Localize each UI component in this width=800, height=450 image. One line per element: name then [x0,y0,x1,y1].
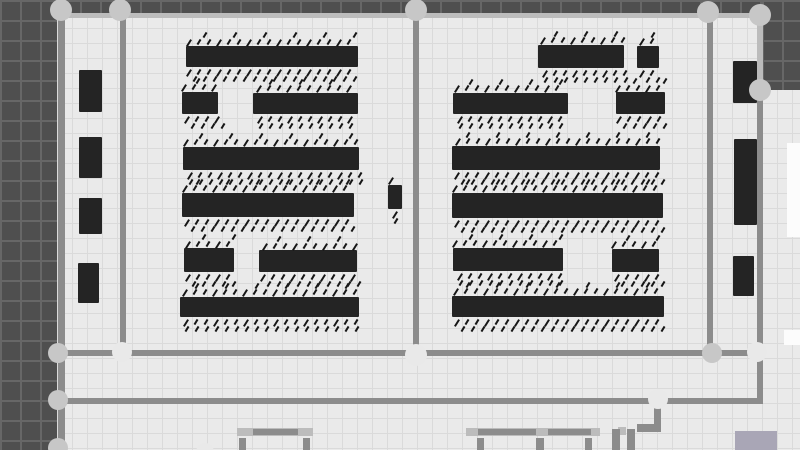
wall-segment[interactable] [413,11,419,355]
wall-segment[interactable] [477,438,484,450]
wall-segment[interactable] [548,429,591,435]
wall-node-handle[interactable] [112,342,132,362]
wall-node-handle[interactable] [749,79,771,101]
wall-segment[interactable] [612,429,620,450]
shelf-rect[interactable] [182,92,218,114]
shelf-rect[interactable] [253,93,358,114]
shelf-rect[interactable] [453,248,563,271]
shelf-rect[interactable] [182,193,354,217]
blank-area [787,143,800,237]
shelf-rect[interactable] [453,93,568,114]
shelf-rect[interactable] [452,146,660,170]
shelf-rect[interactable] [538,45,624,68]
wall-node-handle[interactable] [50,0,72,21]
shelf-rect[interactable] [180,297,359,317]
wall-segment[interactable] [303,438,310,450]
wall-segment[interactable] [757,88,763,352]
wall-segment[interactable] [757,356,763,402]
blank-area [784,330,800,345]
shelf-rect[interactable] [388,185,402,209]
shelf-rect[interactable] [78,263,99,303]
wall-segment[interactable] [707,11,713,354]
wall-segment[interactable] [627,429,635,450]
shelf-rect[interactable] [79,70,102,112]
wall-node-handle[interactable] [109,0,131,21]
wall-segment[interactable] [120,11,126,355]
shelf-rect[interactable] [734,139,757,225]
fixture-rect[interactable] [735,431,777,450]
wall-node-handle[interactable] [702,343,722,363]
shelf-rect[interactable] [79,198,102,234]
shelf-rect[interactable] [79,137,102,178]
wall-node-handle[interactable] [48,343,68,363]
wall-node-handle[interactable] [697,1,719,23]
shelf-rect[interactable] [259,250,357,272]
shelf-rect[interactable] [616,92,665,114]
shelf-rect[interactable] [637,46,659,68]
shelf-rect[interactable] [452,296,664,317]
shelf-rect[interactable] [733,256,754,296]
wall-segment[interactable] [253,429,298,435]
shelf-rect[interactable] [452,193,663,218]
shelf-rect[interactable] [612,249,659,272]
wall-segment[interactable] [637,424,661,432]
out-of-bounds-area [0,0,57,450]
floorplan-canvas[interactable] [0,0,800,450]
wall-node-handle[interactable] [747,342,767,362]
wall-segment[interactable] [478,429,536,435]
wall-segment[interactable] [585,438,592,450]
shelf-rect[interactable] [184,248,234,272]
wall-node-handle[interactable] [48,390,68,410]
wall-node-handle[interactable] [648,389,668,409]
wall-node-handle[interactable] [405,0,427,21]
wall-node-handle[interactable] [405,344,427,366]
wall-node-handle[interactable] [749,4,771,26]
shelf-rect[interactable] [183,147,359,170]
wall-segment[interactable] [536,438,544,450]
wall-segment[interactable] [239,438,246,450]
wall-segment[interactable] [58,11,65,450]
shelf-rect[interactable] [186,46,358,67]
